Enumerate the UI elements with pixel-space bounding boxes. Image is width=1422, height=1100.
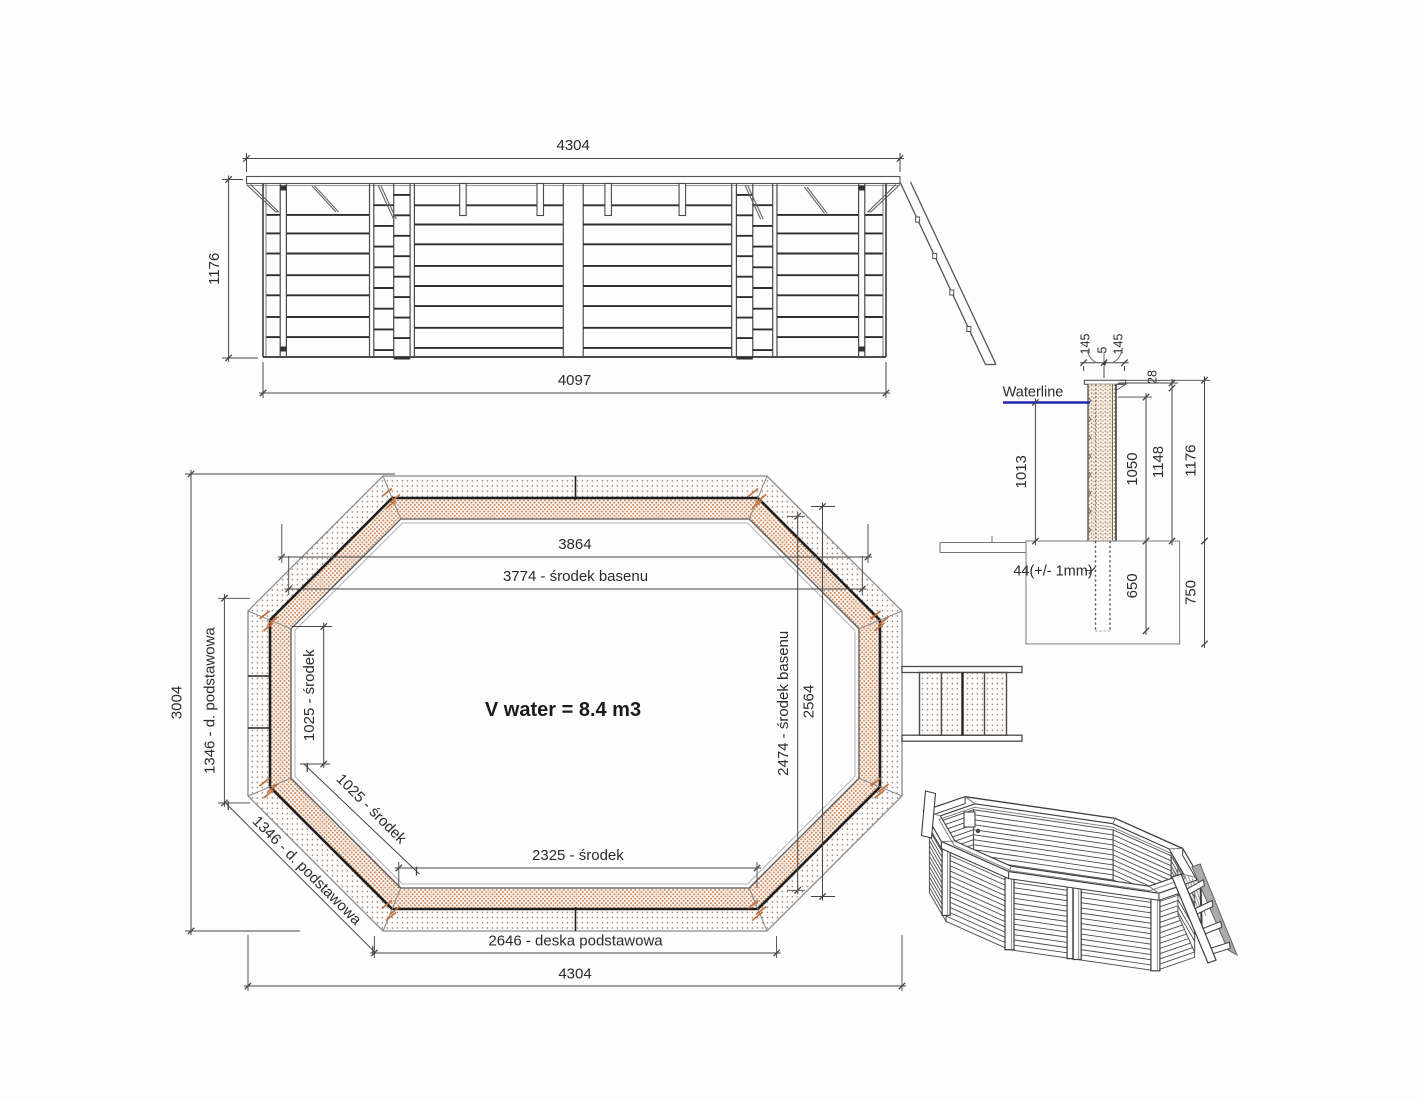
svg-text:4304: 4304 [558, 966, 591, 983]
svg-text:3004: 3004 [169, 686, 186, 719]
svg-text:V water = 8.4 m3: V water = 8.4 m3 [485, 699, 641, 721]
svg-text:1176: 1176 [1183, 444, 1200, 476]
svg-text:1050: 1050 [1124, 452, 1141, 485]
svg-text:2325 - środek: 2325 - środek [532, 847, 624, 864]
svg-text:4304: 4304 [557, 137, 590, 154]
svg-text:1025 - środek: 1025 - środek [301, 649, 318, 741]
svg-text:1176: 1176 [206, 253, 223, 285]
svg-text:145: 145 [1112, 334, 1126, 355]
svg-text:1346 - d. podstawowa: 1346 - d. podstawowa [202, 627, 219, 774]
svg-text:1148: 1148 [1150, 446, 1167, 478]
svg-text:1013: 1013 [1013, 455, 1030, 488]
svg-text:4097: 4097 [558, 372, 591, 389]
svg-text:44(+/- 1mm): 44(+/- 1mm) [1013, 564, 1092, 580]
svg-text:3864: 3864 [558, 536, 591, 553]
svg-text:Waterline: Waterline [1003, 385, 1064, 401]
svg-text:3774 - środek basenu: 3774 - środek basenu [503, 568, 648, 585]
svg-text:28: 28 [1146, 370, 1160, 384]
svg-text:145: 145 [1079, 334, 1093, 355]
svg-text:5: 5 [1096, 346, 1110, 353]
svg-text:750: 750 [1183, 580, 1200, 605]
svg-text:2564: 2564 [801, 685, 818, 718]
svg-text:2646 - deska podstawowa: 2646 - deska podstawowa [488, 933, 663, 950]
svg-text:650: 650 [1124, 573, 1141, 598]
svg-text:2474 - środek basenu: 2474 - środek basenu [775, 631, 792, 776]
